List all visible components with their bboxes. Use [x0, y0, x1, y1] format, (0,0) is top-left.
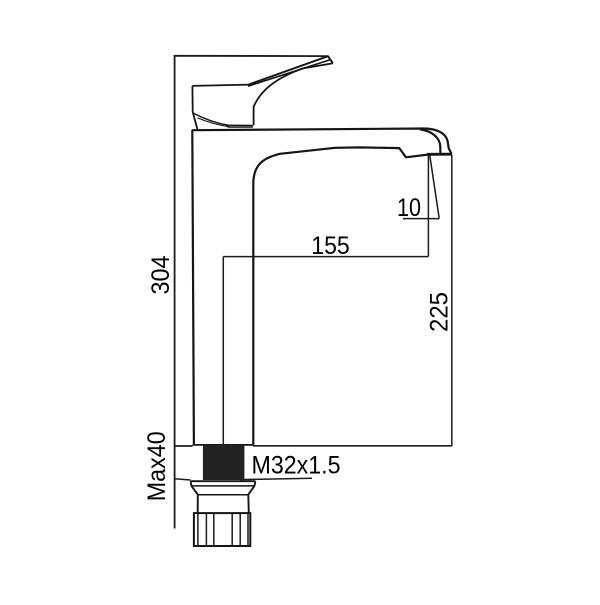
svg-text:304: 304: [147, 255, 175, 294]
svg-text:Max40: Max40: [143, 431, 171, 501]
svg-text:M32x1.5: M32x1.5: [252, 451, 341, 479]
svg-text:10: 10: [397, 194, 421, 222]
svg-text:155: 155: [311, 232, 350, 260]
svg-text:225: 225: [426, 292, 454, 332]
